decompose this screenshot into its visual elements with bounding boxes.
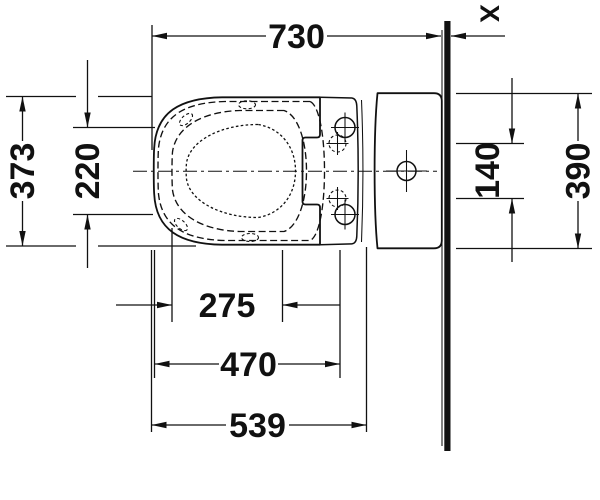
wall-thick-line [444,21,450,451]
dimension-730: 730 X [152,4,505,150]
section-x-label: X [475,4,505,22]
arrowhead [19,231,25,246]
arrowhead [426,33,441,39]
dimension-140: 140 [456,78,524,262]
dimension-220-label: 220 [69,143,107,200]
arrowhead [84,215,90,230]
technical-drawing-page: 730 X 373 220 140 [0,0,600,500]
dimension-140-label: 140 [469,142,507,199]
platform-bottom-edge [320,244,352,245]
dimension-275: 275 [116,287,340,325]
dimension-373-label: 373 [4,143,42,200]
dimension-539-label: 539 [229,407,286,445]
arrowhead [19,97,25,112]
arrowhead [325,361,340,367]
arrowhead [283,302,298,308]
arrowhead [84,113,90,128]
platform-top-edge [320,97,352,98]
arrowhead [575,234,581,249]
wall-section [442,21,451,451]
bottom-extension-lines [152,228,367,432]
toilet-top-view-drawing: 730 X 373 220 140 [0,0,600,500]
arrowhead [157,302,172,308]
arrowhead [451,33,466,39]
dimension-220: 220 [69,60,155,268]
dimension-390-label: 390 [560,143,598,200]
arrowhead [509,129,515,144]
dimension-730-label: 730 [268,18,325,56]
arrowhead [575,94,581,109]
arrowhead [509,199,515,214]
arrowhead [152,33,167,39]
toilet-body [133,93,442,248]
arrowhead [152,422,167,428]
dimension-470-label: 470 [220,346,277,384]
arrowhead [352,422,367,428]
dimension-275-label: 275 [199,287,256,325]
dimension-470: 470 [155,346,341,384]
arrowhead [155,361,170,367]
bumper-front-top [177,111,194,128]
dimension-539: 539 [152,407,367,445]
